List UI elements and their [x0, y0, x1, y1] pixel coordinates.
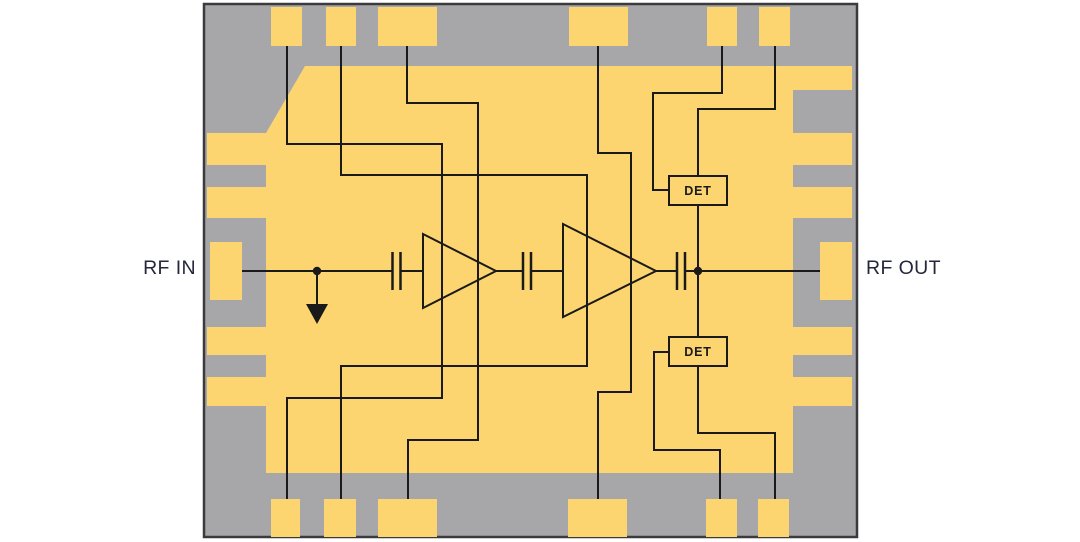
top-pad-4 — [569, 7, 628, 46]
right-edge-pad-3 — [793, 327, 852, 355]
page-background: DET DET RF IN RF OUT — [0, 0, 1080, 542]
det-label-lower: DET — [684, 345, 711, 359]
top-pad-3 — [378, 7, 437, 46]
right-edge-pad-2 — [793, 187, 852, 218]
top-pad-1 — [271, 7, 302, 46]
bottom-pad-4 — [568, 499, 627, 537]
bottom-pad-5 — [706, 499, 737, 537]
right-edge-pad-4 — [793, 377, 852, 406]
bottom-pad-6 — [758, 499, 789, 537]
input-junction-dot — [313, 267, 321, 275]
left-edge-pad-4 — [207, 377, 266, 406]
bottom-pad-3 — [378, 499, 437, 537]
top-pad-2 — [326, 7, 356, 46]
rf-in-pad — [210, 242, 242, 300]
top-pad-5 — [707, 7, 737, 46]
left-edge-pad-1 — [207, 133, 266, 165]
metal-ground-plane — [266, 66, 852, 473]
rf-in-label: RF IN — [143, 257, 196, 279]
right-edge-pad-1 — [793, 133, 852, 165]
left-edge-pad-2 — [207, 187, 266, 218]
top-pad-6 — [759, 7, 790, 46]
rf-out-label: RF OUT — [866, 257, 941, 279]
chip-block-diagram: DET DET RF IN RF OUT — [0, 0, 1080, 542]
rf-out-pad — [820, 242, 852, 300]
left-edge-pad-3 — [207, 327, 266, 355]
output-junction-dot — [694, 267, 702, 275]
bottom-pad-1 — [271, 499, 300, 537]
det-label-upper: DET — [684, 184, 711, 198]
bottom-pad-2 — [324, 499, 356, 537]
